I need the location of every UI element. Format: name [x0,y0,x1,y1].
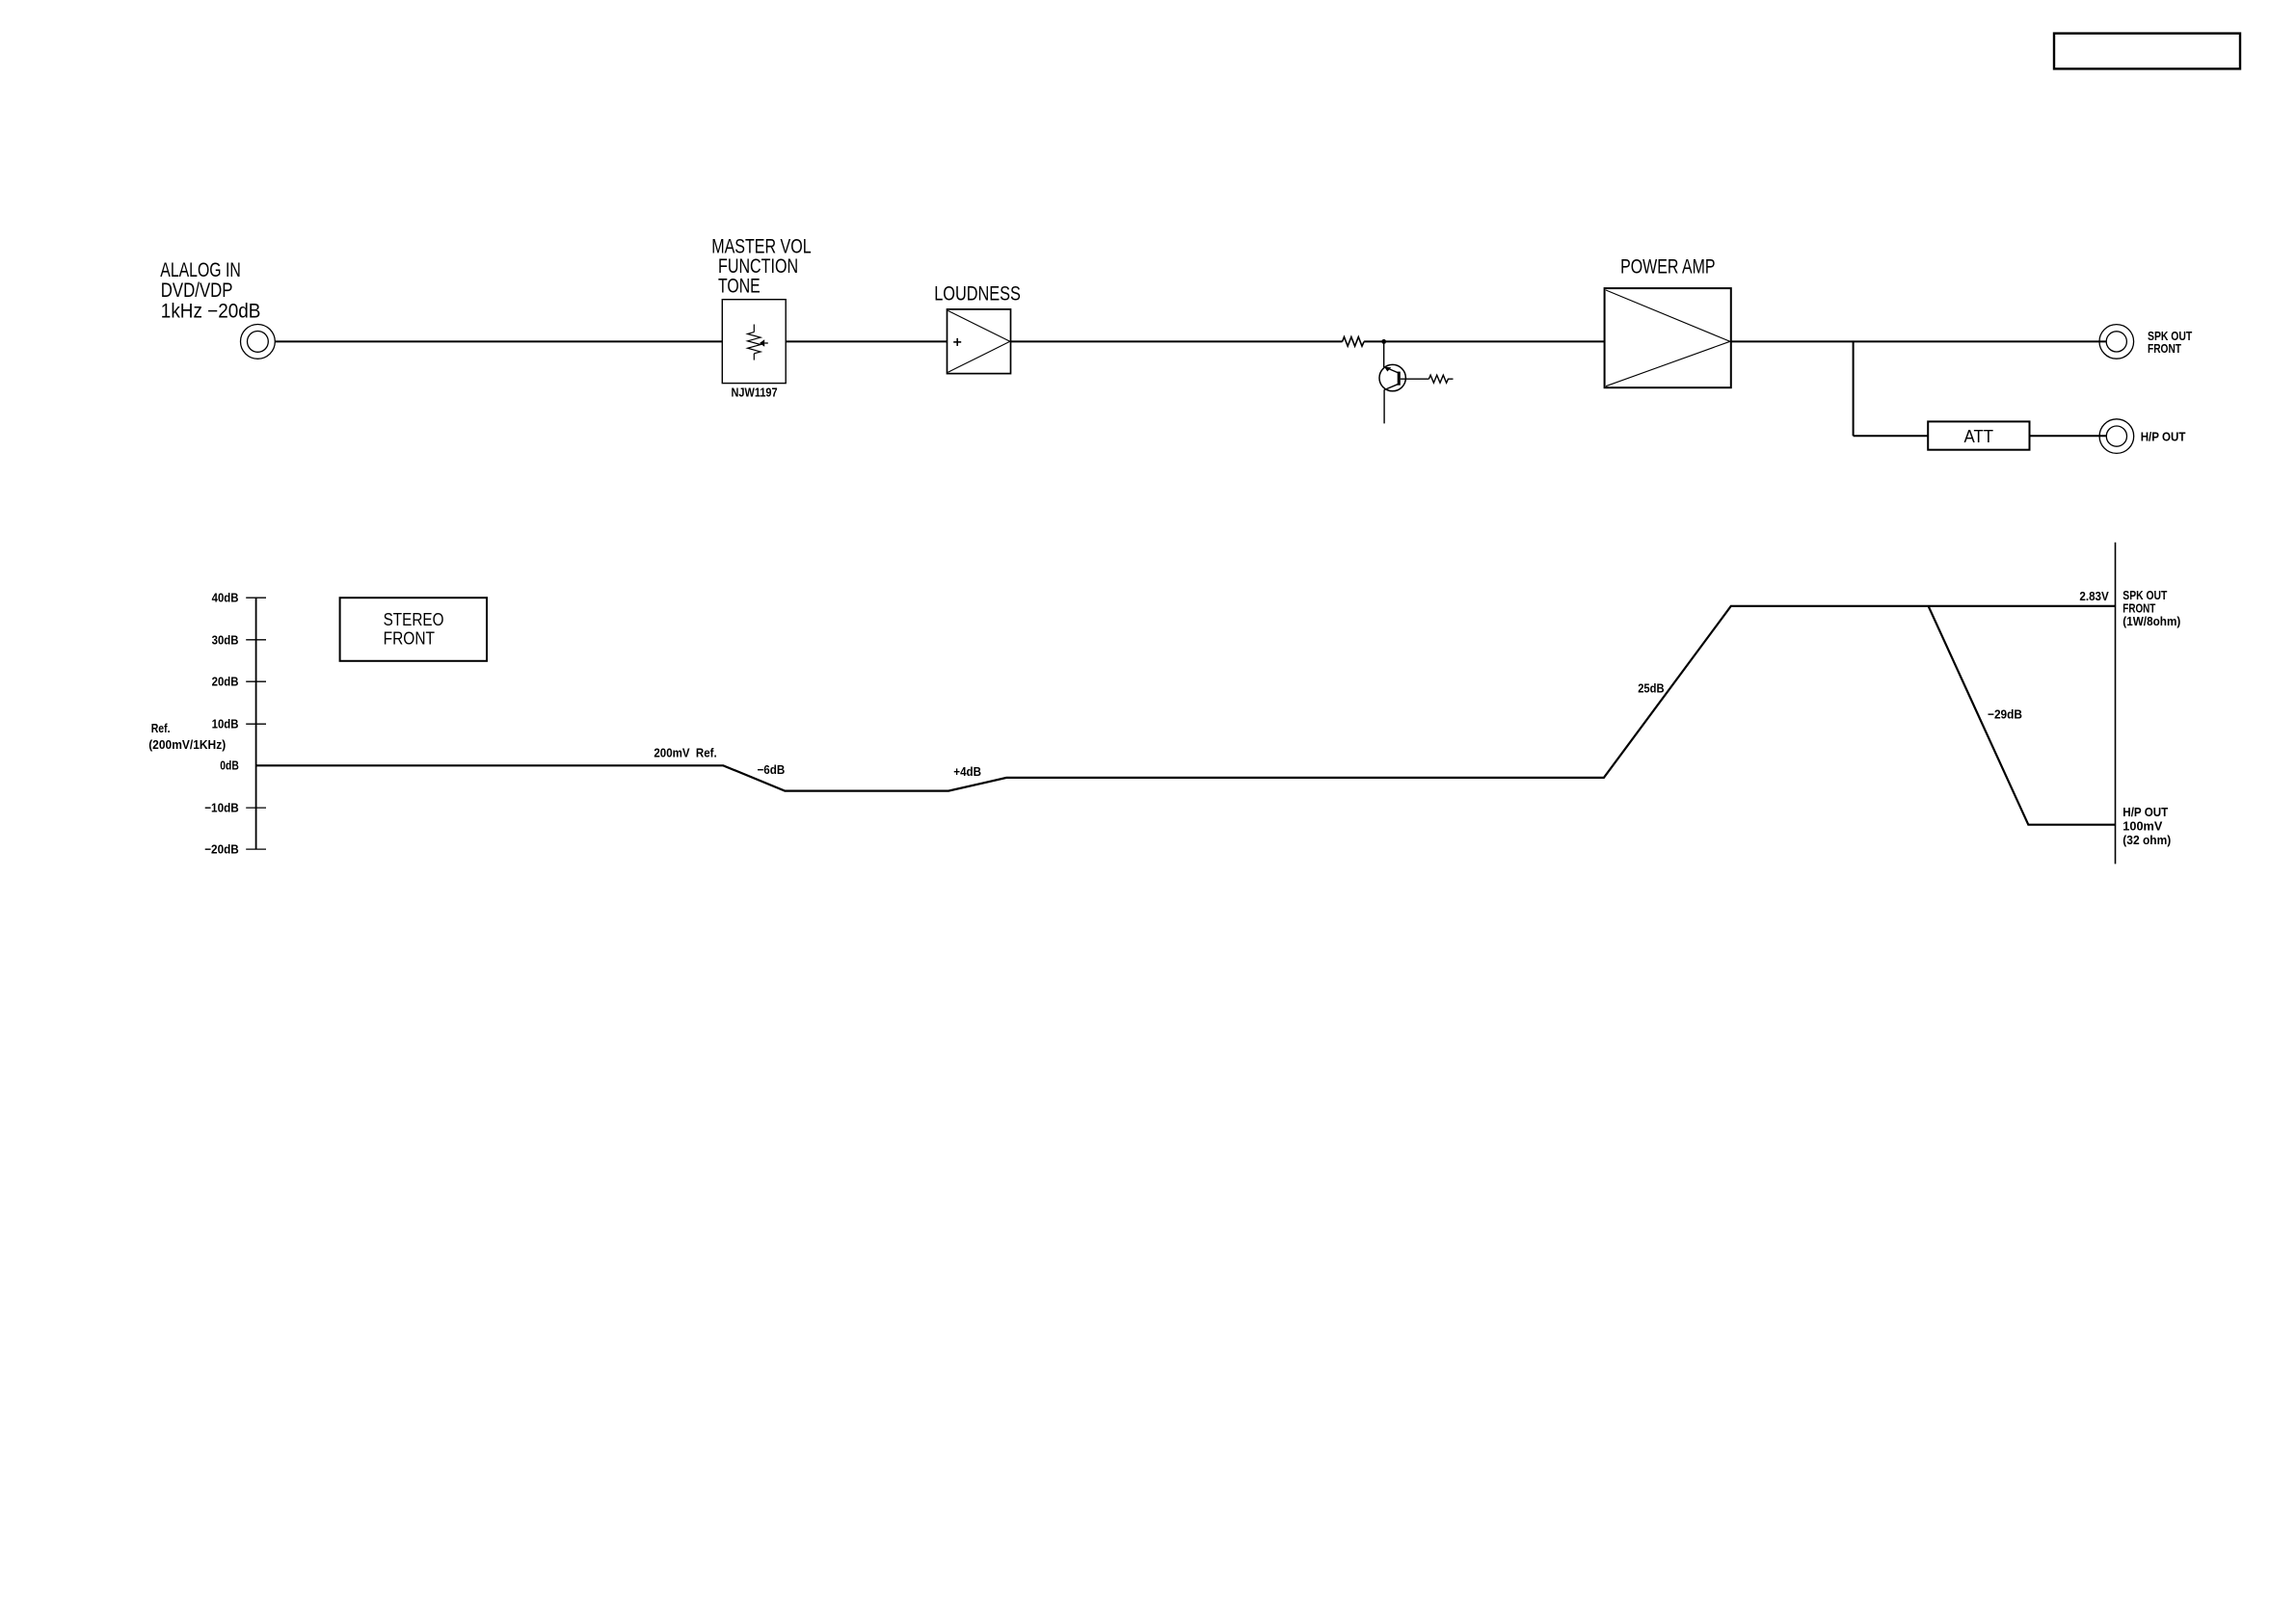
svg-text:(1W/8ohm): (1W/8ohm) [2122,614,2180,628]
svg-text:STEREO: STEREO [384,610,444,629]
svg-text:100mV: 100mV [2122,819,2162,834]
svg-text:H/P OUT: H/P OUT [2141,430,2186,444]
svg-text:−29dB: −29dB [1988,706,2022,721]
svg-text:20dB: 20dB [212,675,239,689]
svg-text:(200mV/1KHz): (200mV/1KHz) [148,737,226,752]
svg-text:H/P OUT: H/P OUT [2122,805,2168,819]
svg-text:+4dB: +4dB [953,764,981,779]
svg-text:40dB: 40dB [212,591,239,605]
svg-text:0dB: 0dB [220,758,239,773]
svg-text:2.83V: 2.83V [2079,589,2109,603]
svg-text:−10dB: −10dB [204,801,239,815]
svg-text:LOUDNESS: LOUDNESS [934,282,1021,305]
svg-text:10dB: 10dB [212,717,239,732]
svg-text:DVD/VDP: DVD/VDP [161,279,233,302]
svg-text:ALALOG IN: ALALOG IN [160,259,241,281]
svg-text:POWER AMP: POWER AMP [1620,256,1716,279]
svg-text:−20dB: −20dB [204,842,239,857]
svg-text:TONE: TONE [718,275,761,297]
svg-text:1kHz −20dB: 1kHz −20dB [161,301,261,323]
svg-text:−6dB: −6dB [758,762,786,777]
svg-text:(32 ohm): (32 ohm) [2122,833,2171,847]
svg-text:30dB: 30dB [212,632,239,647]
svg-text:25dB: 25dB [1638,681,1664,696]
svg-text:FRONT: FRONT [2148,341,2181,356]
svg-text:ATT: ATT [1964,427,1994,446]
svg-text:200mV Ref.: 200mV Ref. [654,746,716,760]
svg-text:Ref.: Ref. [151,721,171,735]
svg-text:NJW1197: NJW1197 [732,386,778,400]
svg-text:FRONT: FRONT [384,629,435,649]
